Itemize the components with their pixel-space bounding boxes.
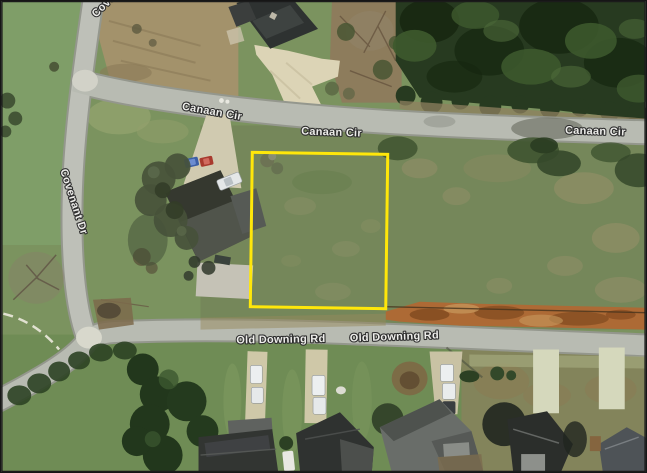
- driveway: [533, 350, 559, 414]
- aerial-map-canvas: Canaan Cir Canaan Cir Canaan Cir Covenan…: [1, 1, 646, 472]
- driveway: [599, 348, 625, 410]
- white-car: [250, 365, 262, 383]
- forest: [393, 1, 646, 128]
- street-label-canaan-cir-3: Canaan Cir: [565, 124, 627, 138]
- white-car: [441, 364, 454, 381]
- white-car: [442, 383, 455, 399]
- bush: [279, 436, 293, 450]
- white-car: [312, 375, 325, 395]
- street-label-old-downing-1: Old Downing Rd: [236, 333, 325, 347]
- aerial-map-viewport[interactable]: Canaan Cir Canaan Cir Canaan Cir Covenan…: [0, 0, 647, 473]
- bush: [459, 370, 479, 382]
- bare-field-east: [330, 1, 403, 103]
- white-car: [313, 397, 326, 414]
- white-structure: [282, 451, 295, 472]
- mailbox: [336, 386, 346, 394]
- white-car: [251, 387, 263, 403]
- street-label-canaan-cir-2: Canaan Cir: [301, 125, 363, 139]
- intersection-patch: [72, 70, 98, 92]
- bush: [490, 366, 504, 380]
